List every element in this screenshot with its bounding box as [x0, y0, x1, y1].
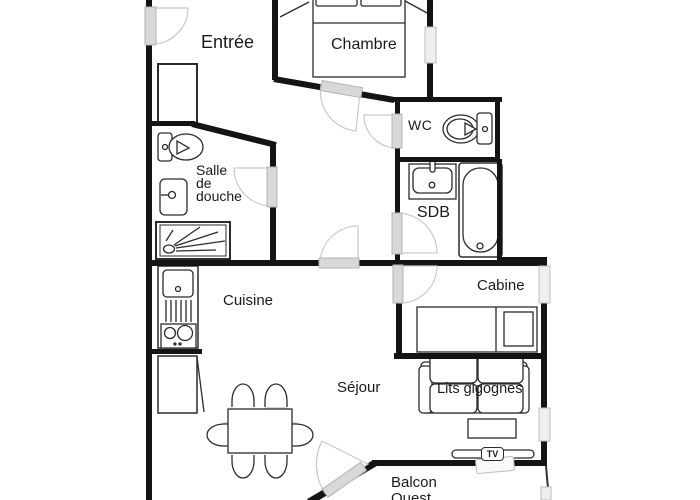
toilet-icon — [443, 113, 492, 144]
cabine-door — [393, 265, 403, 303]
room-label-sdb: SDB — [417, 205, 450, 222]
chambre-corner-line — [280, 2, 309, 17]
room-label-entree: Entrée — [201, 33, 254, 52]
fridge-icon — [158, 356, 204, 413]
cabine-window — [539, 266, 550, 303]
balcony-rail-window — [541, 487, 551, 500]
entry-closet — [158, 64, 197, 124]
shower-tray-icon — [156, 222, 230, 259]
sejour-door — [319, 258, 359, 268]
toilet-icon — [158, 133, 203, 161]
room-label-line: douche — [196, 190, 242, 203]
entry-door — [145, 7, 156, 45]
entry-door-arc — [152, 8, 188, 44]
dining-table-icon — [207, 384, 313, 478]
washbasin-icon — [160, 179, 187, 215]
floorplan-canvas — [0, 0, 700, 500]
room-label-balcon: Balcon Ouest — [391, 475, 437, 500]
kitchen-unit-icon — [158, 266, 198, 348]
tv-icon: TV — [481, 447, 504, 461]
sdb-door — [392, 213, 402, 254]
room-label-chambre: Chambre — [331, 37, 397, 54]
room-label-line: Balcon — [391, 475, 437, 491]
chambre-corner-line — [405, 1, 429, 14]
floor-plan: Entrée Chambre WC SDB Salle de douche Cu… — [0, 0, 700, 500]
single-bed-icon — [417, 307, 537, 352]
wc-door — [392, 114, 402, 148]
chambre-window — [425, 27, 436, 63]
furniture-label-lits-gigognes: Lits gigognes — [437, 382, 522, 397]
sejour-window — [539, 408, 550, 441]
douche-door — [267, 167, 277, 207]
room-label-cabine: Cabine — [477, 278, 525, 294]
room-label-sejour: Séjour — [337, 380, 380, 396]
room-label-salle-de-douche: Salle de douche — [196, 164, 242, 203]
bathtub-icon — [459, 163, 502, 257]
cabine-door-arc — [400, 266, 437, 303]
washbasin-icon — [409, 160, 456, 199]
room-label-line: Ouest — [391, 491, 437, 500]
coffee-table-icon — [468, 419, 516, 438]
room-label-wc: WC — [408, 118, 432, 133]
room-label-cuisine: Cuisine — [223, 293, 273, 309]
